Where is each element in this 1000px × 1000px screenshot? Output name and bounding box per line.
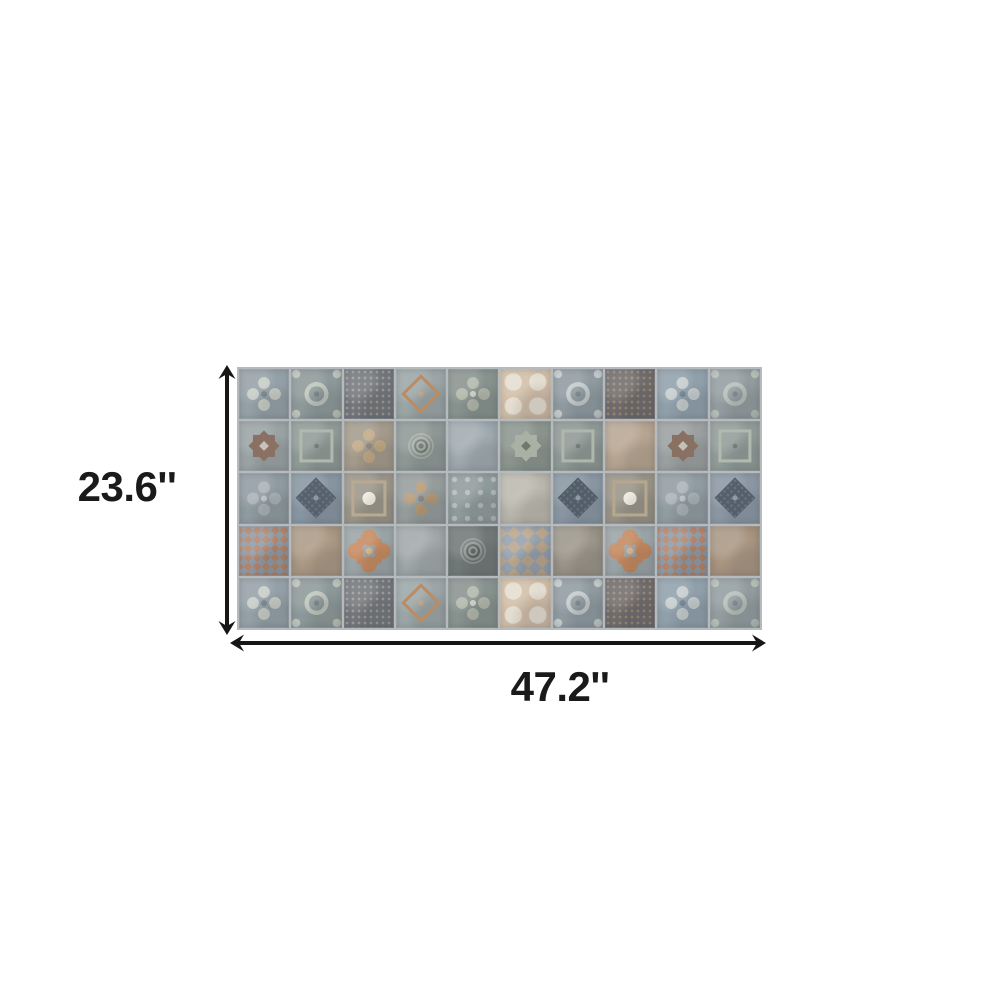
height-dimension-arrow-icon (216, 364, 238, 636)
tile-wreath (291, 578, 341, 628)
tile-wreath (710, 369, 760, 419)
tile-wash (605, 421, 655, 471)
tile-motif (718, 430, 751, 463)
tile-wash (291, 526, 341, 576)
tile-motif (300, 430, 333, 463)
product-dimension-figure: 23.6'' 47.2'' (0, 0, 1000, 1000)
tile-frame-rosette (605, 473, 655, 523)
tile-wash (553, 526, 603, 576)
tile-lattice (605, 369, 655, 419)
tile-lattice (344, 369, 394, 419)
tile-quatrefoil (448, 578, 498, 628)
tile-panel-image (237, 367, 762, 630)
tile-checker (657, 526, 707, 576)
tile-quatrefoil (344, 421, 394, 471)
tile-motif (401, 374, 441, 414)
height-dimension-label: 23.6'' (42, 462, 212, 512)
tile-quatrefoil (239, 369, 289, 419)
tile-quatrefoil (239, 473, 289, 523)
tile-checker (239, 526, 289, 576)
tile-motif (561, 430, 594, 463)
tile-motif (401, 583, 441, 623)
tile-quatrefoil (239, 578, 289, 628)
tile-frame (553, 421, 603, 471)
tile-medallion (396, 421, 446, 471)
tile-lattice (344, 578, 394, 628)
tile-motif (714, 478, 755, 519)
tile-diamond (553, 473, 603, 523)
tile-rosettes (500, 369, 550, 419)
tile-wreath (553, 369, 603, 419)
tile-diamond-outline (396, 369, 446, 419)
tile-star (657, 421, 707, 471)
tile-quatrefoil (657, 369, 707, 419)
tile-quatrefoil (396, 473, 446, 523)
tile-frame-rosette (344, 473, 394, 523)
tile-frame (291, 421, 341, 471)
tile-motif (296, 478, 337, 519)
tile-wreath (710, 578, 760, 628)
tile-wreath (291, 369, 341, 419)
tile-diamond (710, 473, 760, 523)
tile-star (239, 421, 289, 471)
tile-lattice (605, 578, 655, 628)
tile-frame (710, 421, 760, 471)
tile-dotgrid (448, 473, 498, 523)
tile-wash (500, 473, 550, 523)
tile-wash (448, 421, 498, 471)
tile-motif (613, 481, 648, 516)
tile-star (500, 421, 550, 471)
tile-diamond-outline (396, 578, 446, 628)
tile-motif (557, 478, 598, 519)
tile-floral (605, 526, 655, 576)
tile-checker (500, 526, 550, 576)
tile-medallion (448, 526, 498, 576)
tile-rosettes (500, 578, 550, 628)
tile-wash (710, 526, 760, 576)
tile-quatrefoil (657, 473, 707, 523)
tile-motif (351, 481, 386, 516)
tile-quatrefoil (657, 578, 707, 628)
tile-wash (396, 526, 446, 576)
width-dimension-label: 47.2'' (455, 662, 665, 712)
tile-diamond (291, 473, 341, 523)
width-dimension-arrow-icon (228, 632, 768, 654)
tile-wreath (553, 578, 603, 628)
tile-floral (344, 526, 394, 576)
tile-quatrefoil (448, 369, 498, 419)
